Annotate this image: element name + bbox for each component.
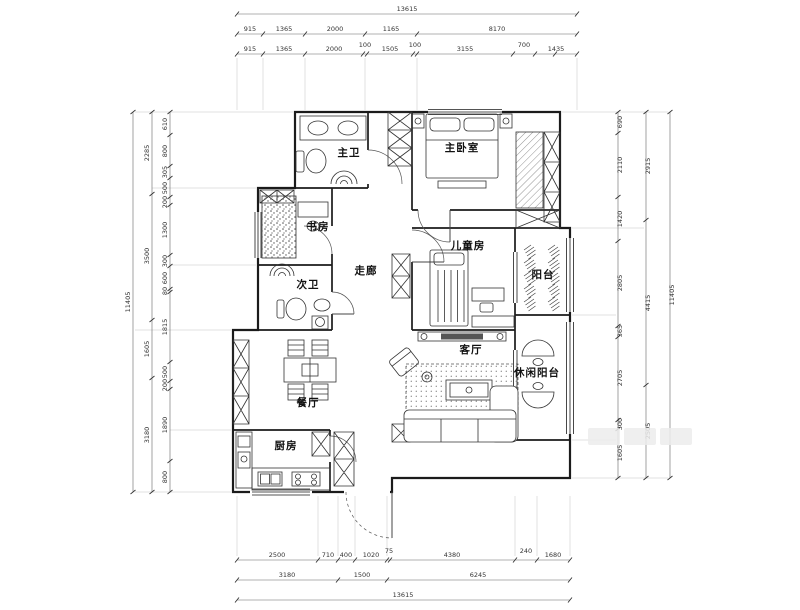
dim-label: 500 xyxy=(161,182,169,194)
kids-bed xyxy=(430,250,468,326)
study-rug xyxy=(262,196,296,258)
study-desk xyxy=(298,202,328,217)
toilet-bowl xyxy=(306,149,326,173)
dim-label: 800 xyxy=(161,471,169,483)
dim-label: 3500 xyxy=(143,248,151,265)
stool xyxy=(533,383,543,390)
dimension-chains xyxy=(131,12,673,603)
leisure-balcony-label: 休闲阳台 xyxy=(513,366,560,379)
dim-label: 1680 xyxy=(545,551,562,559)
sofa xyxy=(404,410,516,442)
dim-label: 1165 xyxy=(383,25,400,33)
dim-label: 4380 xyxy=(444,551,461,559)
dining-furniture xyxy=(284,340,336,400)
toilet-bowl xyxy=(286,298,306,320)
dim-label: 11405 xyxy=(668,285,676,306)
master-bedroom-door-arc xyxy=(418,210,450,242)
dim-label: 800 xyxy=(161,145,169,157)
corridor-label: 走廊 xyxy=(354,264,378,277)
dim-label: 1605 xyxy=(616,445,624,462)
washer xyxy=(312,316,328,329)
dim-label: 610 xyxy=(161,118,169,130)
round-table xyxy=(522,340,554,356)
dim-label: 100 xyxy=(409,41,421,49)
dim-label: 600 xyxy=(161,272,169,284)
dimension-ticks xyxy=(131,12,673,603)
dim-label: 80 xyxy=(161,287,169,295)
dim-label: 75 xyxy=(385,547,393,555)
dim-label: 1605 xyxy=(143,341,151,358)
pillow xyxy=(464,118,494,131)
dim-label: 13615 xyxy=(393,591,414,599)
dim-label: 690 xyxy=(616,116,624,128)
dim-label: 3155 xyxy=(457,45,474,53)
extension-lines xyxy=(135,58,668,556)
round-table xyxy=(522,392,554,408)
dim-label: 500 xyxy=(161,366,169,378)
dim-label: 2705 xyxy=(616,370,624,387)
dim-label: 3180 xyxy=(279,571,296,579)
floor-plan-canvas: 1361591513652000116581709151365200010015… xyxy=(0,0,800,610)
dim-label: 2915 xyxy=(644,158,652,175)
bed-bench xyxy=(438,181,486,188)
dim-label: 1505 xyxy=(382,45,399,53)
dim-label: 2805 xyxy=(616,275,624,292)
living-room-label: 客厅 xyxy=(459,343,483,356)
entry-door-arc xyxy=(346,492,392,538)
balcony-label: 阳台 xyxy=(532,268,555,281)
dim-label: 915 xyxy=(244,45,256,53)
furniture xyxy=(233,112,560,490)
dim-label: 400 xyxy=(340,551,352,559)
kids-room-label: 儿童房 xyxy=(450,239,486,252)
tv xyxy=(441,334,483,340)
toilet-tank xyxy=(296,151,304,172)
dim-label: 2110 xyxy=(616,157,624,174)
dim-label: 1420 xyxy=(616,211,624,228)
nightstand xyxy=(412,114,424,128)
low-cabinet xyxy=(472,316,514,327)
second-bath-label: 次卫 xyxy=(297,278,320,291)
dim-label: 2285 xyxy=(143,145,151,162)
dim-label: 1300 xyxy=(161,222,169,239)
dim-label: 240 xyxy=(520,547,532,555)
dim-label: 915 xyxy=(244,25,256,33)
wardrobe xyxy=(516,132,543,208)
dim-label: 300 xyxy=(161,255,169,267)
dim-label: 100 xyxy=(359,41,371,49)
dim-label: 365 xyxy=(616,325,624,337)
sink-right xyxy=(338,121,358,135)
floor-plan-page: 1361591513652000116581709151365200010015… xyxy=(0,0,800,610)
kids-room-door-arc xyxy=(412,230,444,262)
watermark xyxy=(588,428,692,445)
dim-label: 1500 xyxy=(354,571,371,579)
toilet-tank xyxy=(277,300,284,318)
dim-label: 1365 xyxy=(276,25,293,33)
chair xyxy=(288,340,304,356)
dim-label: 2000 xyxy=(326,45,343,53)
dim-label: 1365 xyxy=(276,45,293,53)
dim-label: 700 xyxy=(518,41,530,49)
dim-label: 3180 xyxy=(143,427,151,444)
dimension-labels-layer: 1361591513652000116581709151365200010015… xyxy=(124,5,676,599)
master-bath-label: 主卫 xyxy=(338,146,361,159)
dimension-lines xyxy=(133,14,670,600)
nightstand xyxy=(500,114,512,128)
second-bath-door-arc xyxy=(332,292,354,314)
sink-left xyxy=(308,121,328,135)
desk-chair xyxy=(480,303,493,312)
dim-label: 6245 xyxy=(470,571,487,579)
kitchen-label: 厨房 xyxy=(275,439,298,452)
master-bedroom-furniture xyxy=(412,114,543,208)
dim-label: 710 xyxy=(322,551,334,559)
dining-room-label: 餐厅 xyxy=(296,396,320,409)
sink xyxy=(314,299,330,311)
dim-label: 200 xyxy=(161,379,169,391)
dim-label: 1890 xyxy=(161,417,169,434)
pillow xyxy=(434,253,464,265)
dim-label: 2500 xyxy=(269,551,286,559)
dim-label: 1815 xyxy=(161,319,169,336)
dim-label: 305 xyxy=(161,166,169,178)
dim-label: 13615 xyxy=(397,5,418,13)
dim-label: 1435 xyxy=(548,45,565,53)
master-bedroom-label: 主卧室 xyxy=(445,141,480,154)
stool xyxy=(533,359,543,366)
chair xyxy=(312,340,328,356)
desk xyxy=(472,288,504,301)
pillow xyxy=(430,118,460,131)
dim-label: 200 xyxy=(161,196,169,208)
counter xyxy=(252,468,330,490)
dim-label: 2000 xyxy=(327,25,344,33)
living-room-furniture xyxy=(388,332,518,442)
second-bath-fixtures xyxy=(270,264,330,329)
dim-label: 1020 xyxy=(363,551,380,559)
dim-label: 4415 xyxy=(644,295,652,312)
study-label: 书房 xyxy=(307,220,330,233)
dim-label: 8170 xyxy=(489,25,506,33)
doors xyxy=(304,150,450,538)
shower-icon xyxy=(331,171,357,184)
dim-label: 11405 xyxy=(124,292,132,313)
